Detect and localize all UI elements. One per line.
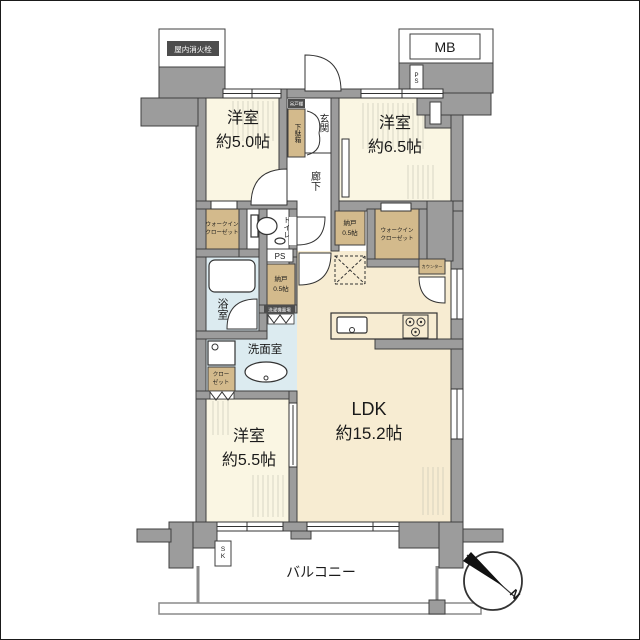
nando-center-name: 納戸: [275, 274, 289, 283]
wic-east-label2: クローゼット: [380, 234, 413, 242]
bathroom-label: 浴室: [216, 298, 229, 320]
vanity-sink-icon: [245, 362, 287, 382]
laundry-label: 洗濯機置場: [268, 307, 291, 314]
floorplan-svg: 屋内消火栓 MB PS 吊戸棚: [1, 1, 639, 639]
pipe-space-label: PS: [275, 252, 286, 261]
window-bedroom-ne: [361, 89, 443, 98]
fire-hydrant-label: 屋内消火栓: [174, 44, 212, 54]
corridor-label: 廊下: [309, 170, 321, 192]
toilet-icon: [257, 218, 277, 235]
window-ldk-east2: [451, 389, 463, 439]
railing-block: [429, 600, 445, 614]
wic-east-door: [381, 203, 411, 211]
washing-machine-icon: [208, 341, 235, 365]
meter-box-label: MB: [435, 39, 456, 55]
pipe-space-mid: PS: [267, 249, 293, 262]
closet-sw-label2: ゼット: [213, 378, 230, 386]
bathtub-icon: [209, 260, 255, 292]
slop-sink-label: SK: [220, 546, 227, 560]
floorplan-image: 屋内消火栓 MB PS 吊戸棚: [0, 0, 640, 640]
closet-sw: クロー ゼット: [208, 367, 235, 400]
bedroom-nw-size: 約5.0帖: [216, 133, 270, 151]
nando-center: 納戸 0.5帖: [267, 264, 295, 305]
bedroom-nw-name: 洋室: [227, 109, 259, 127]
toilet-door-opening: [289, 217, 297, 245]
stove-icon: [403, 315, 428, 338]
closet-sw-label1: クロー: [213, 371, 230, 378]
kitchen-sink-icon: [337, 317, 367, 333]
balcony: SK バルコニー: [137, 522, 503, 614]
bedroom-ne-name: 洋室: [379, 114, 411, 132]
bedroom-sw-size: 約5.5帖: [222, 451, 276, 469]
nando-east: 納戸 0.5帖: [335, 211, 365, 245]
ldk-size: 約15.2帖: [335, 424, 402, 443]
window-ldk-east1: [451, 269, 463, 319]
laundry-area: 洗濯機置場: [264, 305, 295, 324]
nando-east-name: 納戸: [344, 218, 358, 227]
wic-west-label2: クローゼット: [205, 228, 238, 236]
balcony-label: バルコニー: [286, 564, 356, 580]
window-bedroom-sw: [211, 522, 283, 531]
entrance-label: 玄関: [318, 113, 330, 134]
nando-east-size: 0.5帖: [342, 228, 358, 237]
wic-east-label1: ウォークイン: [380, 226, 414, 234]
toilet-paper-icon: [275, 238, 285, 244]
kitchen-counter: [331, 313, 437, 339]
wic-west: ウォークイン クローゼット: [205, 201, 239, 249]
pipe-space-top-label: PS: [414, 73, 420, 85]
hanging-cabinet-label: 吊戸棚: [290, 101, 304, 108]
bedroom-ne-door-leaf: [342, 139, 349, 197]
compass: N: [463, 552, 523, 610]
washroom-label: 洗面室: [248, 342, 283, 356]
bedroom-ne-size: 約6.5帖: [368, 138, 422, 156]
wic-east: ウォークイン クローゼット: [375, 203, 419, 259]
ldk-name: LDK: [351, 399, 386, 419]
nando-center-size: 0.5帖: [273, 284, 289, 293]
wic-west-door: [211, 201, 237, 209]
entrance-door-arc: [305, 55, 341, 91]
bedroom-sw-name: 洋室: [233, 427, 265, 445]
window-bedroom-nw: [223, 89, 281, 98]
wic-west-label1: ウォークイン: [205, 220, 239, 228]
counter-label: カウンター: [422, 263, 443, 270]
